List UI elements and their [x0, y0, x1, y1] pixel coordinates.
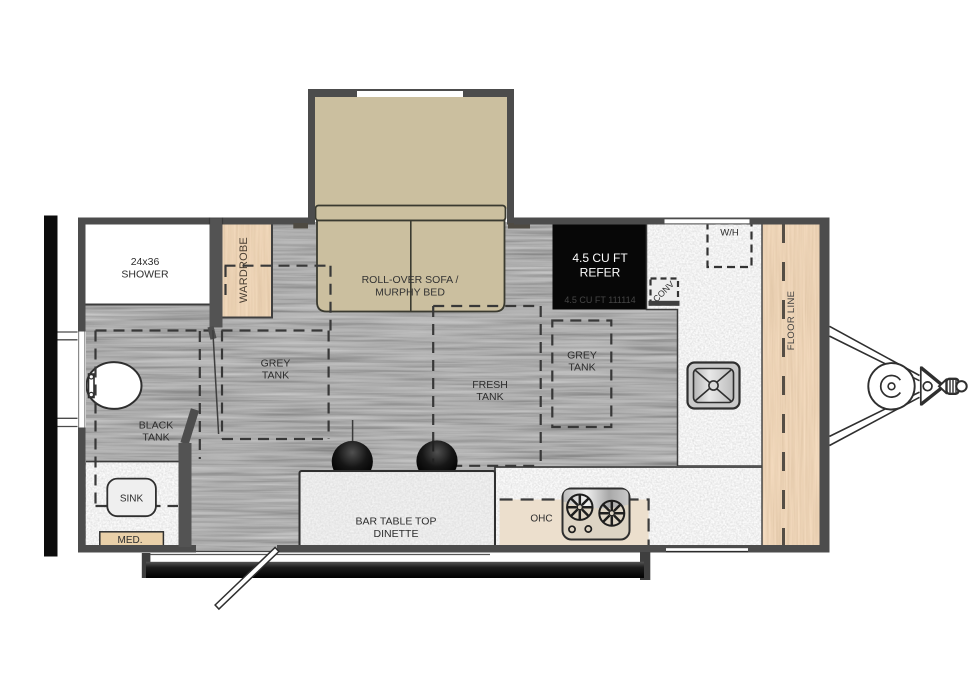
svg-text:TANK: TANK: [568, 362, 595, 374]
svg-text:SINK: SINK: [120, 494, 144, 505]
svg-text:MED.: MED.: [118, 535, 143, 546]
svg-text:4.5 CU FT 111114: 4.5 CU FT 111114: [564, 295, 635, 305]
svg-text:GREY: GREY: [261, 358, 291, 370]
svg-text:DINETTE: DINETTE: [374, 528, 419, 540]
svg-text:BLACK: BLACK: [139, 420, 173, 432]
svg-text:TANK: TANK: [262, 370, 289, 382]
svg-text:W/H: W/H: [720, 228, 739, 239]
svg-text:MURPHY BED: MURPHY BED: [375, 287, 445, 299]
svg-text:FLOOR LINE: FLOOR LINE: [786, 291, 797, 351]
svg-text:BAR TABLE TOP: BAR TABLE TOP: [356, 516, 437, 528]
svg-text:24x36: 24x36: [131, 256, 160, 268]
svg-text:4.5 CU FT: 4.5 CU FT: [572, 251, 628, 265]
svg-text:WARDROBE: WARDROBE: [238, 237, 250, 303]
svg-text:TANK: TANK: [142, 432, 169, 444]
svg-text:TANK: TANK: [476, 391, 503, 403]
svg-text:SHOWER: SHOWER: [121, 269, 169, 281]
svg-text:REFER: REFER: [580, 266, 621, 280]
svg-text:OHC: OHC: [530, 514, 552, 525]
svg-text:GREY: GREY: [567, 350, 597, 362]
svg-text:ROLL-OVER SOFA /: ROLL-OVER SOFA /: [362, 274, 459, 286]
svg-text:FRESH: FRESH: [472, 379, 508, 391]
